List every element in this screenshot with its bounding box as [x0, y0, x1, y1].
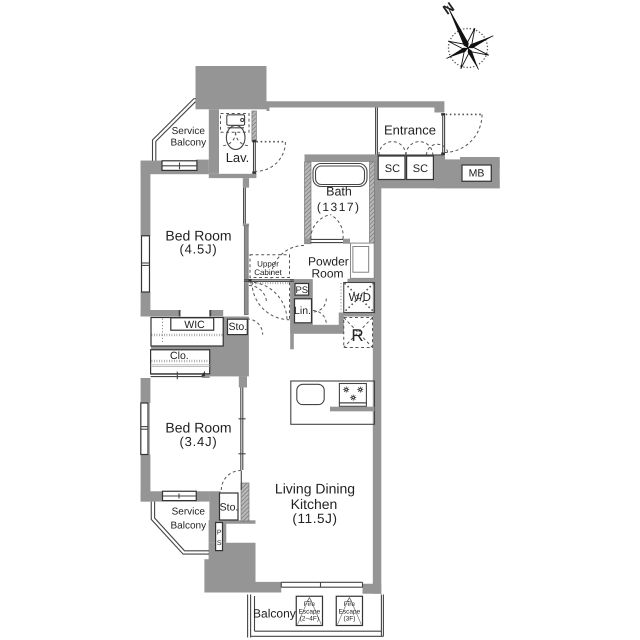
- svg-text:W/D: W/D: [349, 292, 371, 304]
- svg-text:S: S: [217, 540, 222, 547]
- svg-text:Balcony: Balcony: [171, 520, 207, 531]
- svg-text:Fire: Fire: [304, 601, 316, 608]
- svg-text:Escape: Escape: [299, 608, 321, 615]
- svg-text:Sto.: Sto.: [220, 501, 239, 513]
- svg-text:Entrance: Entrance: [384, 123, 436, 138]
- svg-text:(1317): (1317): [317, 200, 361, 214]
- svg-text:(11.5J): (11.5J): [292, 511, 337, 526]
- svg-text:Service: Service: [172, 507, 206, 518]
- svg-text:(3F): (3F): [343, 616, 355, 623]
- svg-text:Living Dining: Living Dining: [275, 480, 355, 496]
- svg-text:Lin.: Lin.: [294, 305, 311, 317]
- svg-text:R: R: [351, 326, 363, 345]
- svg-text:MB: MB: [469, 168, 485, 180]
- svg-text:Balcony: Balcony: [253, 606, 296, 620]
- svg-text:Sto.: Sto.: [228, 321, 247, 333]
- svg-text:PS: PS: [295, 285, 308, 296]
- svg-text:Escape: Escape: [339, 608, 361, 615]
- svg-text:(4.5J): (4.5J): [179, 242, 217, 257]
- svg-text:Bath: Bath: [326, 185, 352, 199]
- svg-text:WIC: WIC: [184, 319, 205, 331]
- svg-text:Balcony: Balcony: [171, 137, 207, 148]
- svg-text:P: P: [217, 530, 222, 537]
- svg-text:(3.4J): (3.4J): [179, 434, 217, 449]
- svg-text:Lav.: Lav.: [226, 150, 250, 165]
- svg-text:Room: Room: [311, 266, 343, 280]
- svg-text:Cabinet: Cabinet: [254, 268, 282, 277]
- svg-text:Service: Service: [172, 126, 206, 137]
- svg-text:Kitchen: Kitchen: [291, 496, 338, 512]
- svg-text:SC: SC: [413, 163, 428, 175]
- svg-text:Fire: Fire: [344, 601, 356, 608]
- svg-text:Clo.: Clo.: [170, 350, 189, 362]
- svg-text:(2~4F): (2~4F): [300, 616, 319, 623]
- svg-text:SC: SC: [385, 163, 400, 175]
